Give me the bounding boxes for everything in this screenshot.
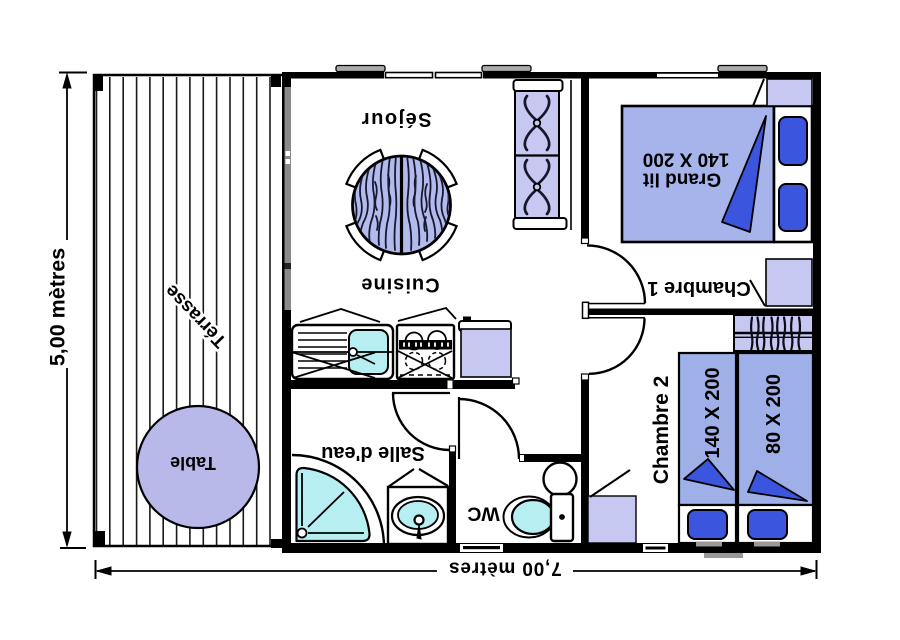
svg-text:Table: Table [170,453,216,473]
svg-text:5,00 mètres: 5,00 mètres [46,248,70,366]
svg-text:Salle d'eau: Salle d'eau [321,442,425,464]
svg-text:80 X 200: 80 X 200 [763,374,785,454]
svg-text:7,00 mètres: 7,00 mètres [448,558,561,579]
svg-text:Séjour: Séjour [360,108,431,130]
svg-text:140 X 200: 140 X 200 [643,149,730,170]
svg-text:Chambre 2: Chambre 2 [650,376,673,485]
svg-text:Chambre 1: Chambre 1 [647,277,750,299]
svg-text:140 X 200: 140 X 200 [702,367,724,458]
svg-text:WC: WC [467,503,500,525]
svg-text:Grand lit: Grand lit [642,169,721,190]
svg-text:Cuisine: Cuisine [360,274,439,296]
